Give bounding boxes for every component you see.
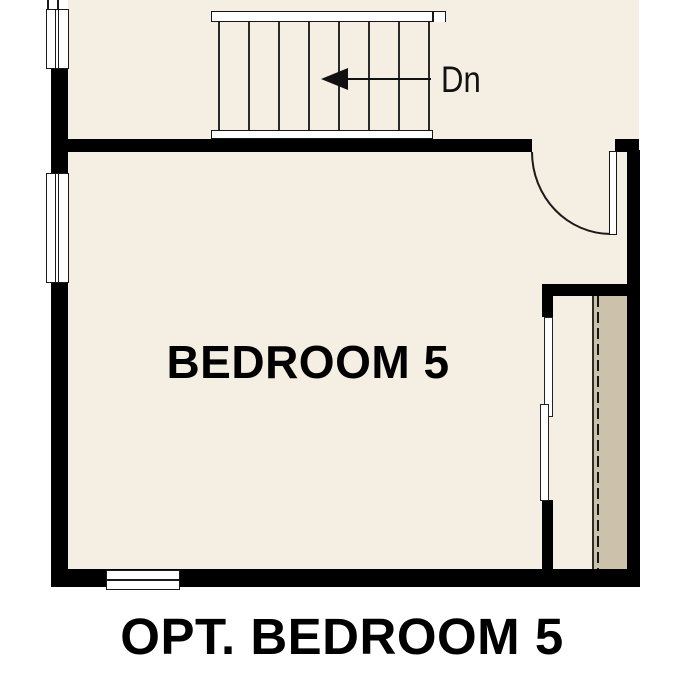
window-mullion [55,173,59,283]
floor-plan: Dn BEDROOM 5 OPT. BEDROOM 5 [0,0,687,687]
wall-cut-line [47,0,49,10]
stair-tread-line [278,22,280,130]
closet-top-wall [542,284,640,296]
plan-caption: OPT. BEDROOM 5 [42,607,642,666]
down-arrow-line [348,78,431,80]
window-left-top [46,9,69,69]
window-left-middle [46,173,69,283]
stair-top-band [211,11,433,22]
stair-tread-line [248,22,250,130]
sliding-door-panel-rear [544,317,553,417]
stair-tread-line [308,22,310,130]
wall-cut-line [57,0,59,10]
closet-rod-dashed-line [597,296,599,570]
stair-tread-line [368,22,370,130]
sliding-door-panel-front [540,404,549,501]
stair-direction-label: Dn [441,60,481,99]
closet-wall-stub-lower [542,500,553,570]
stair-tread-line [428,22,430,130]
stair-tread-line [398,22,400,130]
top-wall [51,139,532,152]
window-mullion [55,9,59,69]
stair-tread-line [218,22,220,130]
door-leaf [609,151,617,235]
left-wall-upper [51,68,68,173]
stair-newel-notch [433,11,446,22]
right-wall [627,150,640,587]
left-wall-lower [51,283,68,587]
stair-bottom-band [211,130,433,139]
window-mullion [107,579,179,581]
down-arrow-icon [321,68,348,90]
closet-wall-stub-upper [542,296,553,317]
room-label: BEDROOM 5 [98,335,518,389]
window-bottom [106,570,180,590]
